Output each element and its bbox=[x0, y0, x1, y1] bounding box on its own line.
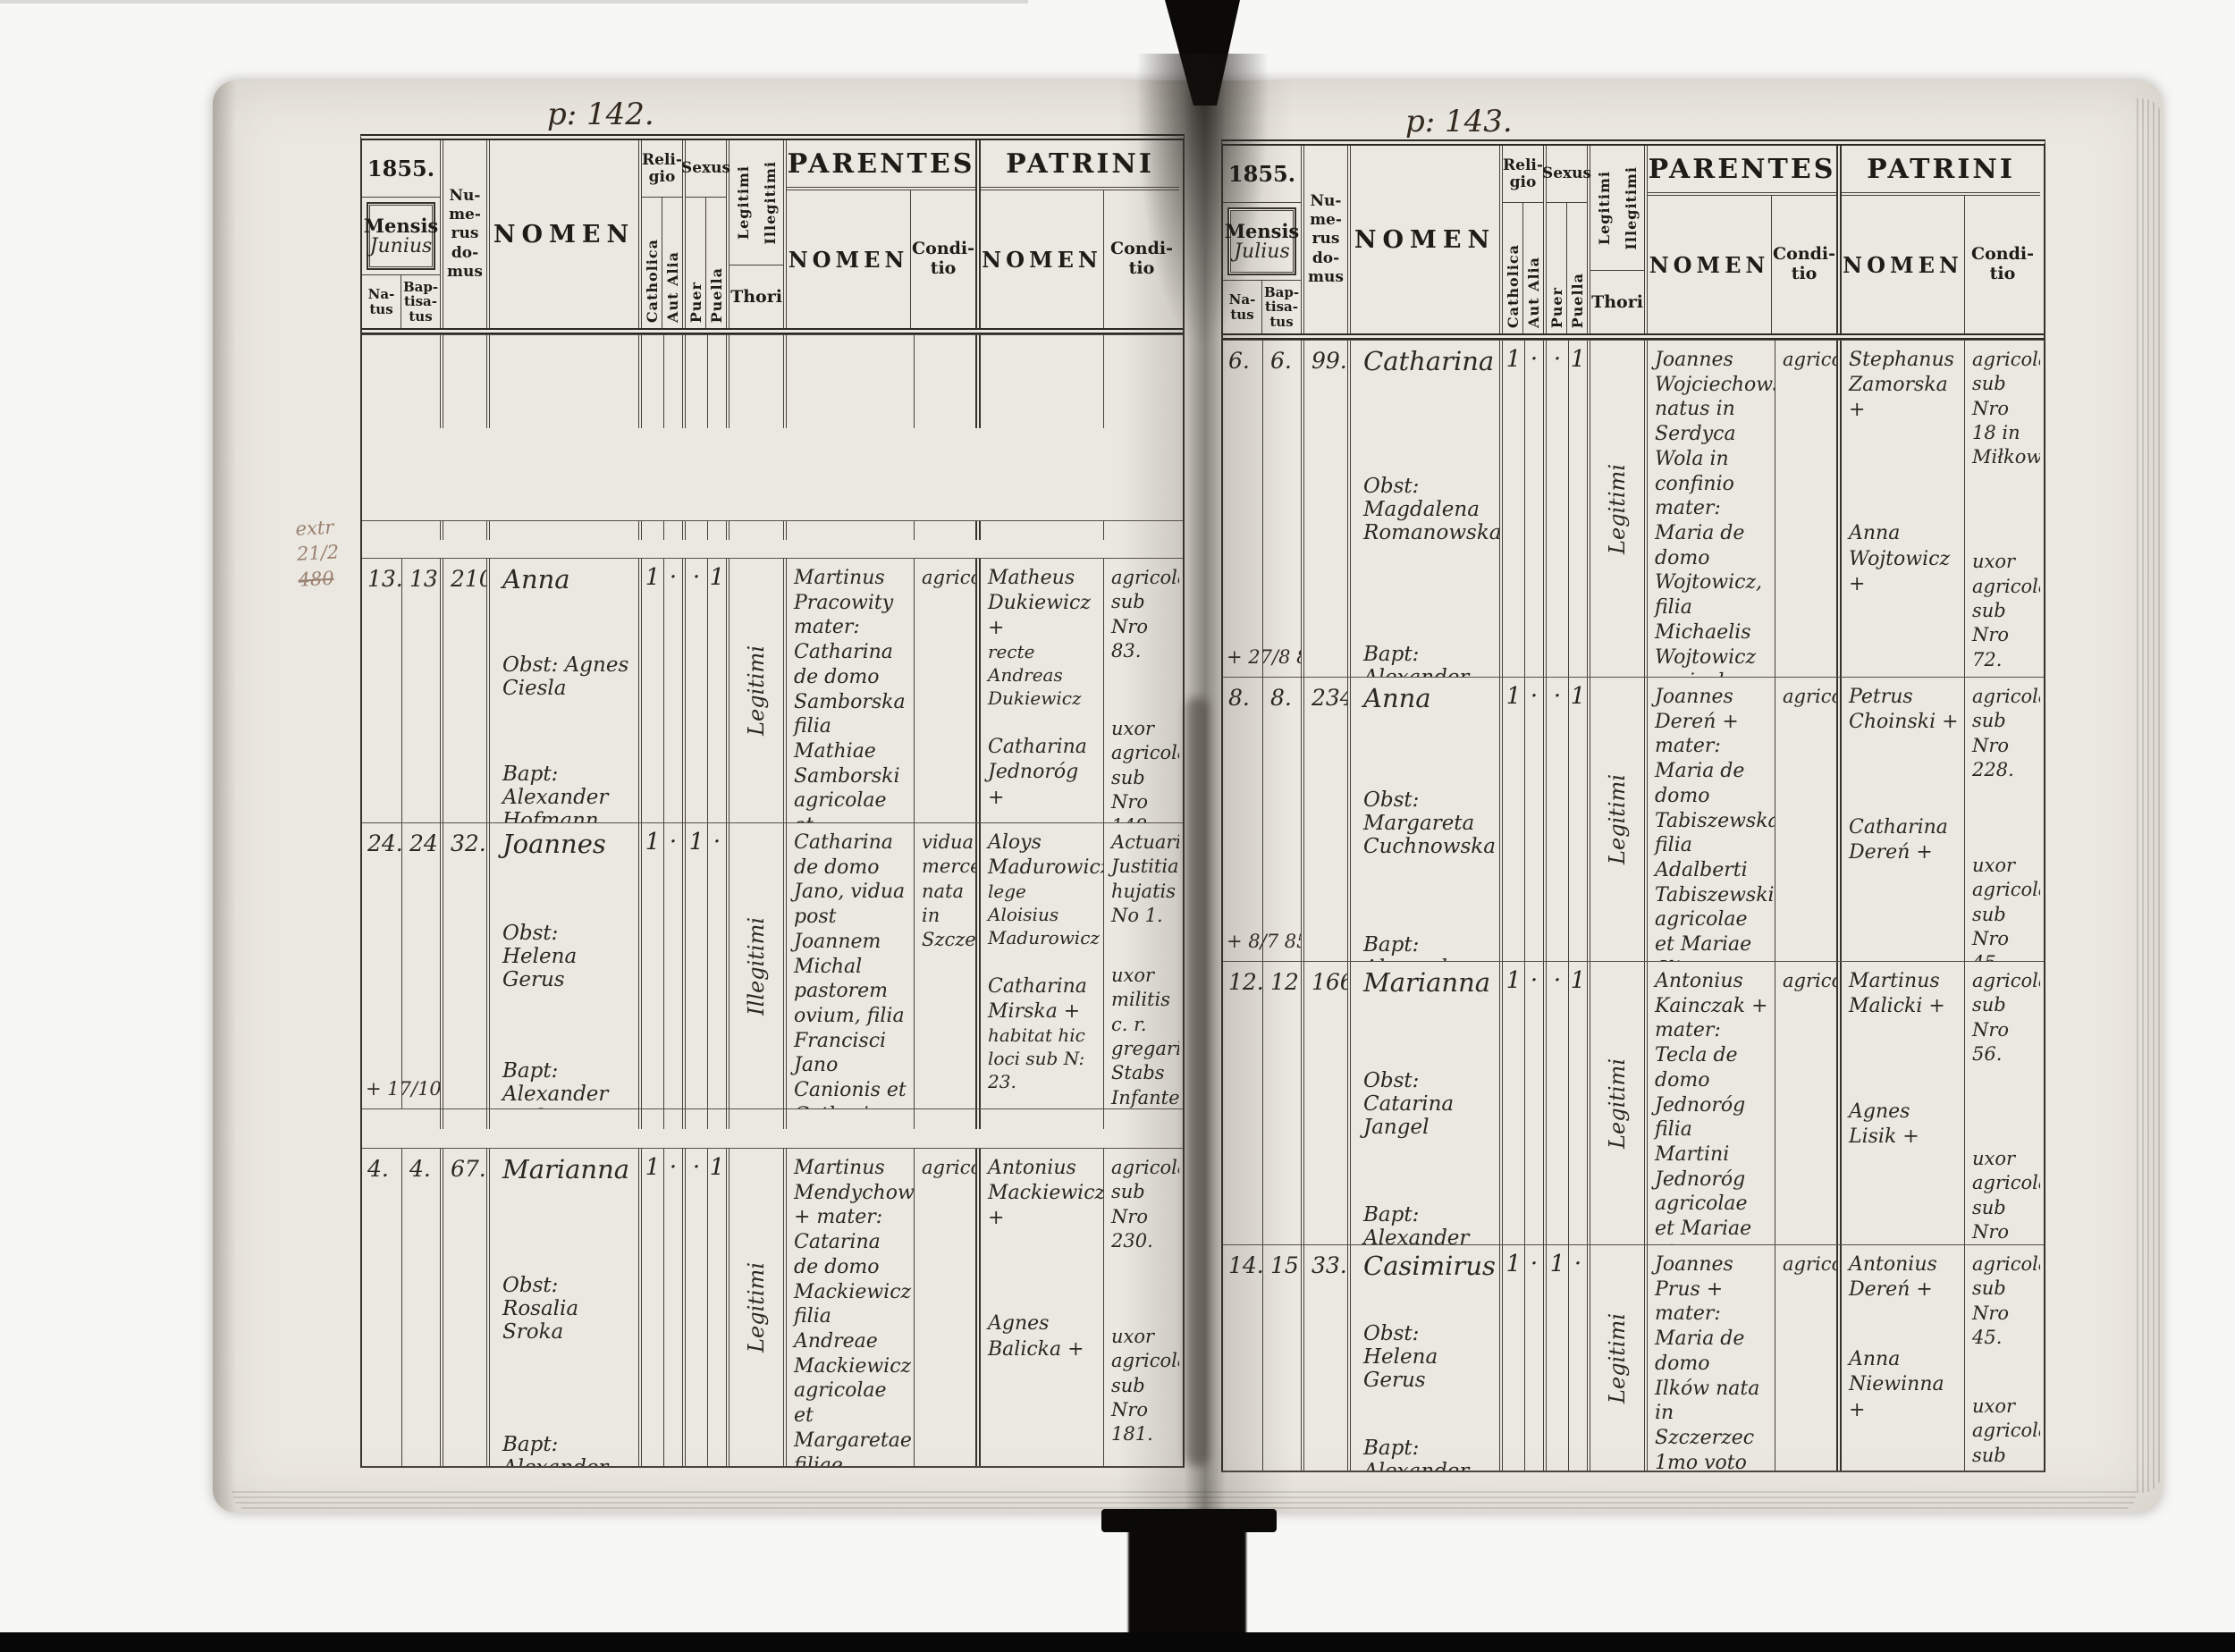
house-number-cell: 32. bbox=[443, 823, 490, 1108]
puer-mark: 1 bbox=[686, 823, 708, 1108]
register-row: 8. 8. + 8/7 855. 234. Anna Obst: Margare… bbox=[1223, 677, 2044, 961]
child-name: Anna bbox=[502, 564, 633, 594]
puella-mark: 1 bbox=[708, 1149, 730, 1466]
parentes-condition: agricola bbox=[1775, 1245, 1842, 1471]
parentes-names: Catharina de domo Jano, vidua post Joann… bbox=[787, 823, 915, 1108]
aut-alia-label: Aut Alia bbox=[664, 251, 681, 323]
godparent-name: Catharina Mirska + bbox=[988, 975, 1087, 1023]
catholica-mark: 1 bbox=[1503, 962, 1525, 1244]
left-table-header: 1855. Mensis Junius Na- tus Bap- tisa- t… bbox=[362, 140, 1183, 334]
scan-edge-artifact bbox=[0, 0, 1028, 4]
puer-mark: · bbox=[1547, 341, 1569, 677]
section-heading-row: Junius 1855. bbox=[362, 520, 1183, 558]
midwife-note: Obst: Magdalena Romanowska bbox=[1363, 475, 1494, 544]
year-label: 1855. bbox=[362, 140, 440, 198]
godparent-name: Antonius Dereń + bbox=[1849, 1253, 1937, 1301]
puer-mark: · bbox=[686, 1149, 708, 1466]
house-number-cell: 99. bbox=[1304, 341, 1351, 677]
baptisatus-value: 6. bbox=[1270, 348, 1292, 374]
right-page-table: 1855. Mensis Julius Na- tus Bap- tisa- t… bbox=[1221, 139, 2045, 1472]
section-heading-overlay: Junius 1855. bbox=[362, 540, 403, 559]
patrini-condition: agricola sub Nro 56. uxor agricolae sub … bbox=[1965, 962, 2040, 1244]
register-scan: p: 142. p: 143. extr 21/2 480 1855. Mens… bbox=[0, 0, 2235, 1652]
legitimacy-note: Legitimi bbox=[744, 1262, 769, 1353]
natus-value: 6. bbox=[1228, 348, 1250, 374]
section-heading-row: Mensis Julius 1855. bbox=[362, 1108, 1183, 1148]
illegitimi-label: Illegitimi bbox=[762, 161, 779, 245]
catholica-mark: 1 bbox=[1503, 1245, 1525, 1471]
register-row: 4. 4. 67. Marianna Obst: Rosalia Sroka B… bbox=[362, 1148, 1183, 1466]
godparent-name: Aloys Madurowicz bbox=[988, 831, 1104, 879]
baptizing-priest: Bapt: Alexander Hofmann bbox=[1363, 1203, 1494, 1244]
patrini-names: Stephanus Zamorska + Anna Wojtowicz + bbox=[1842, 341, 1965, 677]
godparent-name: Catharina Jednoróg + bbox=[988, 736, 1087, 808]
midwife-note: Obst: Helena Gerus bbox=[1363, 1322, 1494, 1392]
midwife-note: Obst: Helena Gerus bbox=[502, 922, 633, 991]
margin-note-line: 21/2 bbox=[296, 539, 359, 568]
natus-value: 24. bbox=[367, 830, 403, 856]
thori-cell: Legitimi bbox=[1590, 678, 1648, 961]
catholica-mark: 1 bbox=[642, 823, 664, 1108]
scan-bottom-band bbox=[0, 1632, 2235, 1652]
baptisatus-label: Bap- tisa- tus bbox=[401, 275, 440, 328]
sexus-label: Sexus bbox=[1547, 146, 1587, 203]
sexus-header: Sexus Puer Puella bbox=[1547, 146, 1590, 333]
house-number: 99. bbox=[1311, 348, 1347, 374]
parentes-condition: agricola bbox=[915, 1149, 981, 1466]
nomen-cell: Joannes Obst: Helena Gerus Bapt: Alexand… bbox=[490, 823, 642, 1108]
nomen-cell: Marianna Obst: Rosalia Sroka Bapt: Alexa… bbox=[490, 1149, 642, 1466]
section-heading-overlay: Mensis Julius 1855. bbox=[362, 1129, 403, 1149]
parentes-names: Martinus Mendychowski + mater: Catarina … bbox=[787, 1149, 915, 1466]
patrini-names: Martinus Malicki + Agnes Lisik + bbox=[1842, 962, 1965, 1244]
register-row: 24. 24. + 17/10 855. 32. Joannes Obst: H… bbox=[362, 822, 1183, 1108]
thori-cell: Legitimi bbox=[730, 1149, 787, 1466]
baptisatus-label: Bap- tisa- tus bbox=[1262, 281, 1301, 333]
puella-mark: 1 bbox=[1569, 962, 1590, 1244]
puella-label: Puella bbox=[1569, 273, 1586, 328]
patrini-names: Aloys Madurowiczlege Aloisius Madurowicz… bbox=[981, 823, 1104, 1108]
godparent-condition: uxor militis c. r. gregarii Stabs Infant… bbox=[1111, 964, 1176, 1108]
house-number-cell: 234. bbox=[1304, 678, 1351, 961]
baptizing-priest: Bapt: Alexander Hofmann bbox=[1363, 933, 1494, 961]
patrini-nomen-label: NOMEN bbox=[981, 190, 1104, 328]
numerus-domus-label: Nu- me- rus do- mus bbox=[1304, 146, 1347, 333]
patrini-title: PATRINI bbox=[981, 140, 1179, 190]
patrini-names: Antonius Dereń + Anna Niewinna + bbox=[1842, 1245, 1965, 1471]
thori-header: Legitimi Illegitimi Thori bbox=[1590, 146, 1648, 333]
child-name: Joannes bbox=[502, 829, 633, 859]
puella-mark: · bbox=[708, 823, 730, 1108]
patrini-header: PATRINI NOMEN Condi- tio bbox=[1842, 146, 2040, 333]
catholica-mark: 1 bbox=[1503, 678, 1525, 961]
legitimi-label: Legitimi bbox=[1596, 171, 1613, 245]
month-handwritten: Junius bbox=[370, 235, 433, 257]
patrini-condition: agricola sub Nro 83. uxor agricolae sub … bbox=[1104, 559, 1179, 822]
date-header: 1855. Mensis Julius Na- tus Bap- tisa- t… bbox=[1223, 146, 1304, 333]
margin-note-line: 480 bbox=[298, 564, 361, 593]
nomen-header: NOMEN bbox=[490, 140, 642, 328]
page-number-left: p: 142. bbox=[547, 97, 654, 132]
house-number: 32. bbox=[451, 830, 486, 856]
patrini-condition: agricola sub Nro 230. uxor agricolae sub… bbox=[1104, 1149, 1179, 1466]
parentes-title: PARENTES bbox=[1648, 146, 1836, 196]
midwife-note: Obst: Agnes Ciesla bbox=[502, 653, 633, 700]
puella-mark: 1 bbox=[1569, 678, 1590, 961]
puer-mark: · bbox=[1547, 962, 1569, 1244]
godparent-name: Anna Wojtowicz + bbox=[1849, 522, 1950, 594]
baptisatus-value: 12. bbox=[1270, 969, 1304, 995]
godparent-name: Agnes Balicka + bbox=[988, 1312, 1084, 1360]
godparent-name: Petrus Choinski + bbox=[1849, 686, 1959, 733]
house-number-cell: 210. bbox=[443, 559, 490, 822]
mensis-label: Mensis bbox=[1225, 220, 1300, 242]
catholica-mark: 1 bbox=[642, 1149, 664, 1466]
child-name: Catharina bbox=[1363, 346, 1494, 376]
patrini-condition: agricola sub Nro 18 in Miłkowiu uxor agr… bbox=[1965, 341, 2040, 677]
puer-mark: · bbox=[686, 559, 708, 822]
thori-cell: Legitimi bbox=[1590, 1245, 1648, 1471]
mensis-label: Mensis bbox=[364, 215, 439, 237]
natus-label: Na- tus bbox=[362, 275, 401, 328]
patrini-condition: Actuarius Justitiariatus hujatis No 1. u… bbox=[1104, 823, 1179, 1108]
baptisatus-value: 13. bbox=[409, 566, 443, 592]
puer-label: Puer bbox=[1548, 287, 1565, 328]
dates-cell: 12. 12. bbox=[1223, 962, 1304, 1244]
patrini-header: PATRINI NOMEN Condi- tio bbox=[981, 140, 1179, 328]
parentes-names: Martinus Pracowity mater: Catharina de d… bbox=[787, 559, 915, 822]
register-row: 13. 13. 210. Anna Obst: Agnes Ciesla Bap… bbox=[362, 558, 1183, 822]
legitimacy-note: Legitimi bbox=[1605, 774, 1630, 864]
religio-label: Reli- gio bbox=[642, 140, 682, 198]
thori-cell: Illegitimi bbox=[730, 823, 787, 1108]
register-row: 12. 12. 166. Marianna Obst: Catarina Jan… bbox=[1223, 961, 2044, 1244]
aut-alia-mark: · bbox=[1525, 341, 1547, 677]
catholica-label: Catholica bbox=[644, 239, 661, 323]
parentes-condition: vidua mercenaria, nata in Szczerzec bbox=[915, 823, 981, 1108]
patrini-condition: agricola sub Nro 45. uxor agricolae sub … bbox=[1965, 1245, 2040, 1471]
aut-alia-mark: · bbox=[1525, 962, 1547, 1244]
child-name: Anna bbox=[1363, 683, 1494, 713]
left-page-table: 1855. Mensis Junius Na- tus Bap- tisa- t… bbox=[360, 134, 1185, 1468]
patrini-conditio-label: Condi- tio bbox=[1104, 190, 1179, 328]
baptizing-priest: Bapt: Alexander Hofmann bbox=[502, 763, 633, 822]
aut-alia-label: Aut Alia bbox=[1525, 257, 1542, 328]
puer-label: Puer bbox=[687, 282, 704, 323]
religio-header: Reli- gio Catholica Aut Alia bbox=[1503, 146, 1547, 333]
godparent-condition: uxor agricolae sub Nro 148. bbox=[1111, 717, 1176, 822]
house-number: 166. bbox=[1311, 969, 1351, 995]
catholica-mark: 1 bbox=[642, 559, 664, 822]
parentes-header: PARENTES NOMEN Condi- tio bbox=[1648, 146, 1842, 333]
parentes-conditio-label: Condi- tio bbox=[1772, 196, 1836, 333]
patrini-conditio-label: Condi- tio bbox=[1965, 196, 2040, 333]
visitation-note: Vidimus in Visitatione Nostra generali c… bbox=[362, 428, 403, 521]
religio-header: Reli- gio Catholica Aut Alia bbox=[642, 140, 686, 328]
baptizing-priest: Bapt: Alexander Hofmann bbox=[502, 1433, 633, 1466]
dates-cell: 4. 4. bbox=[362, 1149, 443, 1466]
thori-label: Thori bbox=[730, 265, 783, 328]
godparent-condition: uxor agricolae sub Nro 39. bbox=[1972, 1395, 2037, 1471]
child-name: Casimirus bbox=[1363, 1251, 1494, 1281]
godparent-condition: uxor agricolae sub Nro 154. bbox=[1972, 1147, 2037, 1244]
parentes-condition: agricola bbox=[915, 559, 981, 822]
thori-header: Legitimi Illegitimi Thori bbox=[730, 140, 787, 328]
register-row: 14. 15. 33. Casimirus Obst: Helena Gerus… bbox=[1223, 1244, 2044, 1471]
godparent-condition: agricola sub Nro 45. bbox=[1972, 1252, 2037, 1350]
godparent-name: Agnes Lisik + bbox=[1849, 1100, 1919, 1148]
death-annotation: + 8/7 855. bbox=[1227, 931, 1304, 952]
house-number: 67. bbox=[451, 1156, 486, 1182]
natus-label: Na- tus bbox=[1223, 281, 1262, 333]
sexus-label: Sexus bbox=[686, 140, 726, 198]
house-number-cell: 166. bbox=[1304, 962, 1351, 1244]
thori-label: Thori bbox=[1590, 271, 1644, 333]
aut-alia-mark: · bbox=[1525, 1245, 1547, 1471]
baptizing-priest: Bapt: Alexander Hofmann bbox=[1363, 1437, 1494, 1471]
baptisatus-value: 4. bbox=[409, 1156, 431, 1182]
thori-cell: Legitimi bbox=[730, 559, 787, 822]
natus-value: 12. bbox=[1228, 969, 1264, 995]
patrini-names: Matheus Dukiewicz +recte Andreas Dukiewi… bbox=[981, 559, 1104, 822]
godparent-condition: agricola sub Nro 230. bbox=[1111, 1156, 1176, 1253]
aut-alia-mark: · bbox=[664, 1149, 686, 1466]
month-handwritten: Julius bbox=[1234, 240, 1290, 263]
register-row: 6. 6. + 27/8 855. 99. Catharina Obst: Ma… bbox=[1223, 340, 2044, 677]
death-annotation: + 27/8 855. bbox=[1227, 646, 1304, 668]
aut-alia-mark: · bbox=[664, 559, 686, 822]
parentes-names: Joannes Prus + mater: Maria de domo Ilkó… bbox=[1648, 1245, 1775, 1471]
nomen-header: NOMEN bbox=[1351, 146, 1503, 333]
natus-value: 14. bbox=[1228, 1252, 1264, 1278]
godparent-name: Catharina Dereń + bbox=[1849, 816, 1948, 864]
numerus-domus-header: Nu- me- rus do- mus bbox=[1304, 146, 1351, 333]
child-name: Marianna bbox=[502, 1154, 633, 1184]
baptisatus-value: 8. bbox=[1270, 685, 1292, 711]
godparent-condition: Actuarius Justitiariatus hujatis No 1. bbox=[1111, 830, 1176, 928]
parentes-condition: agricola bbox=[1775, 341, 1842, 677]
puella-label: Puella bbox=[708, 267, 725, 323]
godparent-condition: agricola sub Nro 83. bbox=[1111, 566, 1176, 663]
dates-cell: 13. 13. bbox=[362, 559, 443, 822]
aut-alia-mark: · bbox=[1525, 678, 1547, 961]
godparent-note: recte Andreas Dukiewicz bbox=[988, 641, 1099, 710]
nomen-cell: Marianna Obst: Catarina Jangel Bapt: Ale… bbox=[1351, 962, 1503, 1244]
margin-note-line: extr bbox=[295, 513, 358, 542]
legitimacy-note: Illegitimi bbox=[744, 917, 769, 1016]
baptizing-priest: Bapt: Alexander Hofmann bbox=[502, 1059, 633, 1108]
parentes-title: PARENTES bbox=[787, 140, 975, 190]
house-number-cell: 33. bbox=[1304, 1245, 1351, 1471]
catholica-mark: 1 bbox=[1503, 341, 1525, 677]
godparent-condition: agricola sub Nro 228. bbox=[1972, 685, 2037, 782]
midwife-note: Obst: Rosalia Sroka bbox=[502, 1274, 633, 1344]
book-left-edge bbox=[213, 80, 236, 1513]
gutter-smudge bbox=[1185, 697, 1209, 1466]
nomen-cell: Anna Obst: Agnes Ciesla Bapt: Alexander … bbox=[490, 559, 642, 822]
parentes-names: Joannes Wojciechowski, natus in Serdyca … bbox=[1648, 341, 1775, 677]
godparent-condition: uxor agricolae sub Nro 45. bbox=[1972, 854, 2037, 961]
godparent-name: Stephanus Zamorska + bbox=[1849, 349, 1954, 421]
baptisatus-value: 15. bbox=[1270, 1252, 1304, 1278]
mensis-box: Mensis Junius bbox=[362, 198, 440, 274]
natus-value: 4. bbox=[367, 1156, 389, 1182]
numerus-domus-header: Nu- me- rus do- mus bbox=[443, 140, 490, 328]
parentes-nomen-label: NOMEN bbox=[1648, 196, 1772, 333]
house-number: 33. bbox=[1311, 1252, 1347, 1278]
legitimacy-note: Legitimi bbox=[744, 645, 769, 736]
dates-cell: 24. 24. + 17/10 855. bbox=[362, 823, 443, 1108]
nomen-cell: Catharina Obst: Magdalena Romanowska Bap… bbox=[1351, 341, 1503, 677]
parentes-condition: agricola bbox=[1775, 678, 1842, 961]
puer-mark: 1 bbox=[1547, 1245, 1569, 1471]
baptisatus-value: 24. bbox=[409, 830, 443, 856]
baptizing-priest: Bapt: Alexander Hofmann bbox=[1363, 643, 1494, 677]
illegitimi-label: Illegitimi bbox=[1623, 166, 1640, 250]
legitimacy-note: Legitimi bbox=[1605, 464, 1630, 554]
patrini-names: Antonius Mackiewicz + Agnes Balicka + bbox=[981, 1149, 1104, 1466]
puella-mark: 1 bbox=[1569, 341, 1590, 677]
dates-cell: 6. 6. + 27/8 855. bbox=[1223, 341, 1304, 677]
catholica-label: Catholica bbox=[1505, 244, 1522, 328]
legitimacy-note: Legitimi bbox=[1605, 1058, 1630, 1149]
nomen-cell: Anna Obst: Margareta Cuchnowska Bapt: Al… bbox=[1351, 678, 1503, 961]
parentes-names: Antonius Kainczak + mater: Tecla de domo… bbox=[1648, 962, 1775, 1244]
parentes-nomen-label: NOMEN bbox=[787, 190, 911, 328]
numerus-domus-label: Nu- me- rus do- mus bbox=[443, 140, 486, 328]
child-name: Marianna bbox=[1363, 967, 1494, 998]
godparent-note: lege Aloisius Madurowicz bbox=[988, 881, 1099, 949]
midwife-note: Obst: Margareta Cuchnowska bbox=[1363, 788, 1494, 858]
godparent-name: Anna Niewinna + bbox=[1849, 1348, 1944, 1420]
death-annotation: + 17/10 855. bbox=[366, 1078, 443, 1100]
patrini-nomen-label: NOMEN bbox=[1842, 196, 1965, 333]
godparent-condition: agricola sub Nro 56. bbox=[1972, 969, 2037, 1066]
house-number: 210. bbox=[451, 566, 490, 592]
parentes-conditio-label: Condi- tio bbox=[911, 190, 975, 328]
nomen-cell: Casimirus Obst: Helena Gerus Bapt: Alexa… bbox=[1351, 1245, 1503, 1471]
thori-cell: Legitimi bbox=[1590, 962, 1648, 1244]
mensis-box: Mensis Julius bbox=[1223, 203, 1301, 280]
margin-annotation: extr 21/2 480 bbox=[295, 513, 361, 593]
house-number-cell: 67. bbox=[443, 1149, 490, 1466]
godparent-note: habitat hic loci sub N: 23. bbox=[988, 1024, 1099, 1093]
godparent-condition: uxor agricolae sub Nro 181. bbox=[1111, 1325, 1176, 1446]
patrini-names: Petrus Choinski + Catharina Dereń + bbox=[1842, 678, 1965, 961]
natus-value: 13. bbox=[367, 566, 403, 592]
patrini-condition: agricola sub Nro 228. uxor agricolae sub… bbox=[1965, 678, 2040, 961]
natus-value: 8. bbox=[1228, 685, 1250, 711]
midwife-note: Obst: Catarina Jangel bbox=[1363, 1069, 1494, 1139]
godparent-name: Antonius Mackiewicz + bbox=[988, 1157, 1104, 1229]
godparent-name: Martinus Malicki + bbox=[1849, 970, 1945, 1017]
date-header: 1855. Mensis Junius Na- tus Bap- tisa- t… bbox=[362, 140, 443, 328]
aut-alia-mark: · bbox=[664, 823, 686, 1108]
parentes-names: Joannes Dereń + mater: Maria de domo Tab… bbox=[1648, 678, 1775, 961]
patrini-title: PATRINI bbox=[1842, 146, 2040, 196]
parentes-header: PARENTES NOMEN Condi- tio bbox=[787, 140, 981, 328]
puella-mark: · bbox=[1569, 1245, 1590, 1471]
puer-mark: · bbox=[1547, 678, 1569, 961]
book-fore-edge bbox=[2137, 98, 2162, 1493]
page-number-right: p: 143. bbox=[1405, 104, 1513, 139]
godparent-condition: uxor agricolae sub Nro 72. bbox=[1972, 550, 2037, 671]
legitimi-label: Legitimi bbox=[735, 165, 752, 240]
dates-cell: 8. 8. + 8/7 855. bbox=[1223, 678, 1304, 961]
year-label: 1855. bbox=[1223, 146, 1301, 203]
puella-mark: 1 bbox=[708, 559, 730, 822]
house-number: 234. bbox=[1311, 685, 1351, 711]
thori-cell: Legitimi bbox=[1590, 341, 1648, 677]
right-table-header: 1855. Mensis Julius Na- tus Bap- tisa- t… bbox=[1223, 146, 2044, 340]
religio-label: Reli- gio bbox=[1503, 146, 1543, 203]
sexus-header: Sexus Puer Puella bbox=[686, 140, 730, 328]
legitimacy-note: Legitimi bbox=[1605, 1313, 1630, 1403]
visitation-row: Vidimus in Visitatione Nostra generali c… bbox=[362, 334, 1183, 520]
godparent-name: Matheus Dukiewicz + bbox=[988, 567, 1091, 639]
godparent-condition: agricola sub Nro 18 in Miłkowiu bbox=[1972, 348, 2037, 469]
dates-cell: 14. 15. bbox=[1223, 1245, 1304, 1471]
parentes-condition: agricola bbox=[1775, 962, 1842, 1244]
